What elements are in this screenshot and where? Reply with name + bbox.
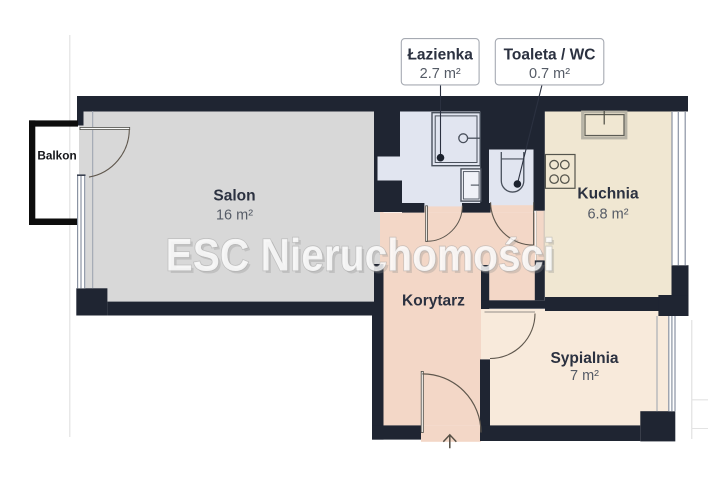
svg-text:Kuchnia: Kuchnia xyxy=(577,186,639,203)
svg-text:Sypialnia: Sypialnia xyxy=(550,350,618,367)
svg-text:16 m²: 16 m² xyxy=(216,208,253,224)
svg-text:7 m²: 7 m² xyxy=(570,368,599,384)
svg-text:ESC Nieruchomości: ESC Nieruchomości xyxy=(166,229,555,280)
svg-text:6.8 m²: 6.8 m² xyxy=(587,207,628,223)
svg-text:Salon: Salon xyxy=(213,187,255,204)
svg-text:Toaleta / WC: Toaleta / WC xyxy=(504,47,596,64)
svg-text:Korytarz: Korytarz xyxy=(402,293,465,310)
svg-text:2.7 m²: 2.7 m² xyxy=(420,66,461,82)
svg-text:Balkon: Balkon xyxy=(37,148,76,162)
svg-text:0.7 m²: 0.7 m² xyxy=(529,66,570,82)
svg-text:Łazienka: Łazienka xyxy=(407,47,473,64)
